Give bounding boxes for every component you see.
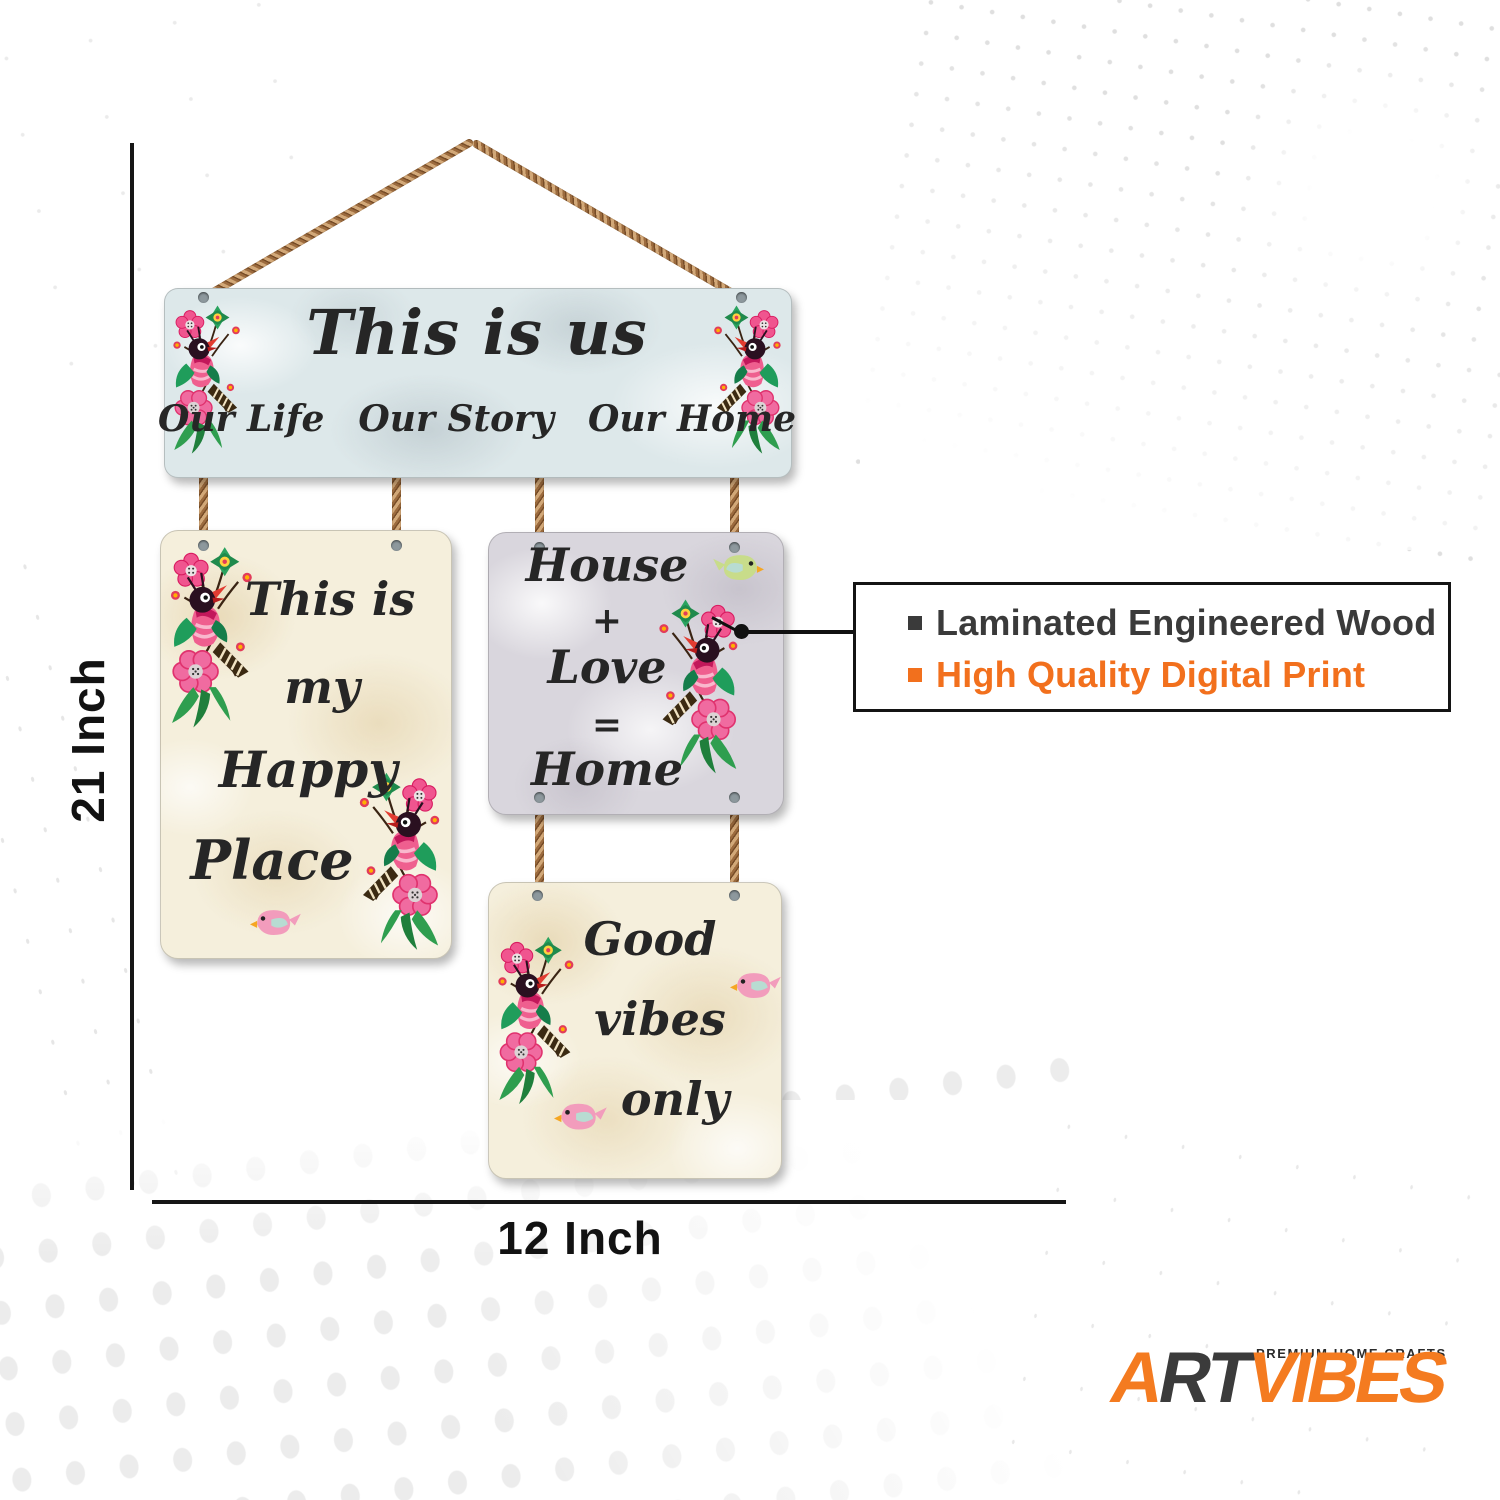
callout-item-print: High Quality Digital Print: [908, 649, 1448, 701]
dimension-label-width: 12 Inch: [480, 1212, 680, 1264]
brand-logo-part: IBES: [1284, 1338, 1452, 1418]
dimension-line-vertical: [130, 143, 134, 1190]
callout-box: Laminated Engineered Wood High Quality D…: [853, 582, 1451, 712]
rope-hole: [729, 890, 740, 901]
plaque-left-line: Place: [162, 828, 382, 892]
plaque-bottom-line: only: [575, 1072, 775, 1126]
dimension-label-height: 21 Inch: [62, 640, 114, 840]
small-bird-icon: [712, 548, 764, 586]
plaque-left-line: This is: [220, 572, 440, 626]
brand-logo: ARTVIBES: [1105, 1342, 1451, 1414]
callout-item-label: Laminated Engineered Wood: [936, 602, 1436, 644]
hanging-rope-right: [471, 139, 745, 303]
square-bullet-icon: [908, 616, 922, 630]
plaque-bottom-line: Good: [550, 912, 750, 966]
halftone-pattern-bottom-right: [982, 1090, 1500, 1500]
plaque-middle-line: Home: [507, 742, 707, 796]
brand-logo-part: RT: [1152, 1338, 1256, 1418]
plaque-left-line: my: [212, 660, 432, 714]
product-infographic: 21 Inch 12 Inch This is us Our Life Our …: [0, 0, 1500, 1500]
rope-hole: [391, 540, 402, 551]
plaque-top-subtitle-life: Our Life: [158, 398, 324, 440]
plaque-middle-line: +: [507, 600, 707, 642]
callout-item-label: High Quality Digital Print: [936, 654, 1365, 696]
callout-connector-line: [746, 630, 854, 634]
dimension-line-horizontal: [152, 1200, 1066, 1204]
rope-hole: [729, 792, 740, 803]
callout-item-material: Laminated Engineered Wood: [908, 597, 1448, 649]
halftone-fade-top-right: [860, 0, 1500, 550]
plaque-top-subtitle-home: Our Home: [588, 398, 796, 440]
small-bird-icon: [250, 903, 302, 941]
plaque-middle-line: =: [507, 704, 707, 746]
plaque-middle-line: House: [507, 538, 707, 592]
hanging-rope-left: [201, 138, 475, 302]
plaque-bottom-line: vibes: [560, 992, 760, 1046]
plaque-top-subtitle-story: Our Story: [358, 398, 554, 440]
plaque-left-line: Happy: [198, 740, 418, 799]
plaque-top-subtitle: Our Life Our Story Our Home: [164, 398, 790, 440]
halftone-pattern-top-right: [840, 0, 1500, 577]
plaque-middle-line: Love: [507, 640, 707, 694]
square-bullet-icon: [908, 668, 922, 682]
rope-hole: [532, 890, 543, 901]
plaque-top-title: This is us: [164, 296, 790, 369]
